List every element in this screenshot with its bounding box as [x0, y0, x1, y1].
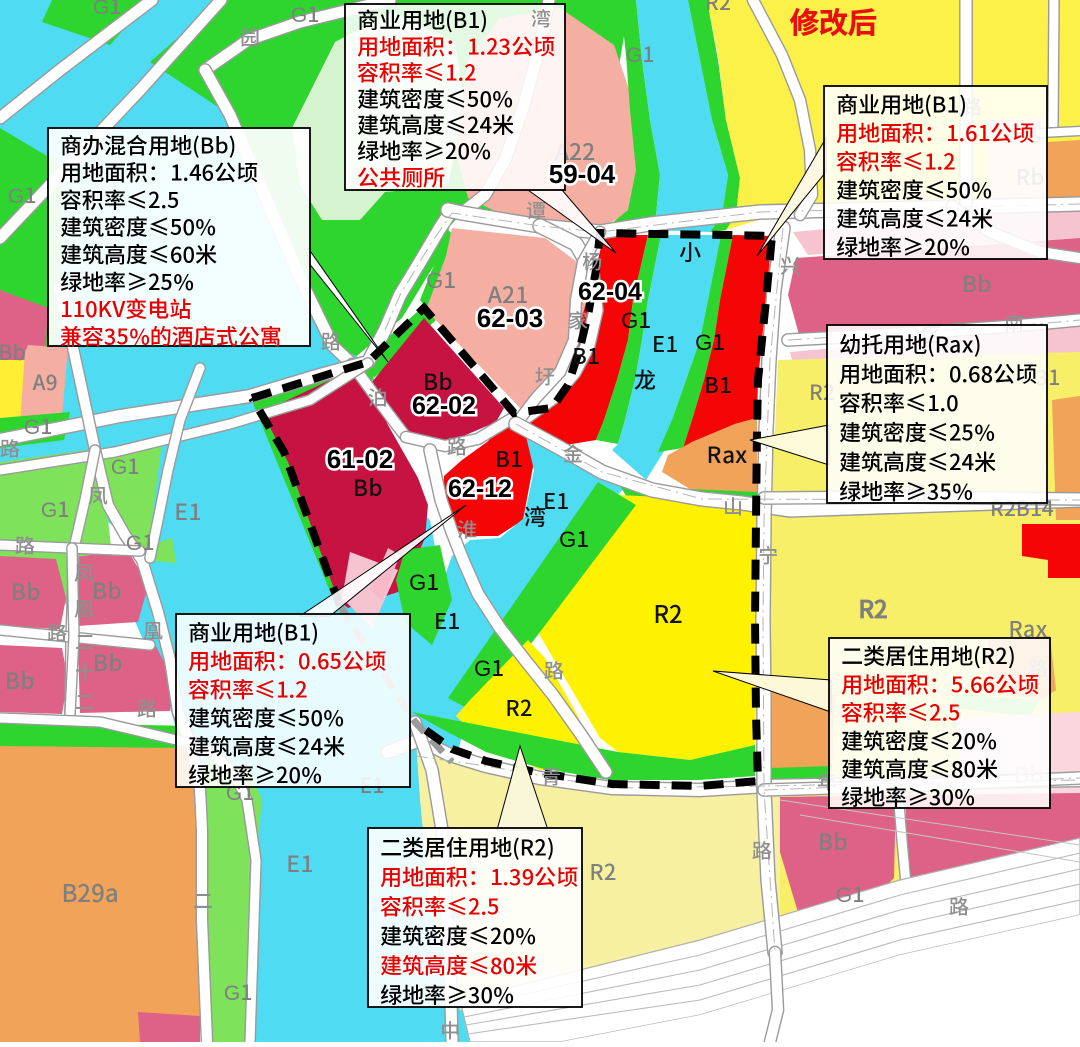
- svg-text:A9: A9: [32, 367, 57, 397]
- svg-text:容积率≤2.5: 容积率≤2.5: [380, 890, 500, 922]
- svg-text:二类居住用地(R2): 二类居住用地(R2): [841, 639, 1016, 671]
- svg-text:路: 路: [47, 617, 67, 646]
- svg-text:路: 路: [15, 530, 35, 559]
- svg-text:圩: 圩: [535, 361, 555, 390]
- svg-text:淮: 淮: [457, 514, 477, 543]
- svg-text:E1: E1: [543, 484, 569, 516]
- svg-text:家: 家: [568, 305, 588, 334]
- svg-text:G1: G1: [626, 39, 654, 69]
- svg-text:用地面积：1.61公顷: 用地面积：1.61公顷: [836, 116, 1034, 148]
- svg-text:G1: G1: [426, 263, 456, 295]
- svg-text:凰: 凰: [143, 615, 163, 644]
- svg-text:62-02: 62-02: [412, 392, 476, 420]
- svg-text:建筑密度≤20%: 建筑密度≤20%: [380, 919, 536, 951]
- svg-text:Bb: Bb: [92, 572, 122, 606]
- svg-text:用地面积：0.65公顷: 用地面积：0.65公顷: [188, 644, 386, 676]
- svg-text:G1: G1: [93, 0, 121, 21]
- svg-text:Bb: Bb: [353, 469, 383, 503]
- svg-text:62-03: 62-03: [477, 303, 544, 333]
- svg-text:园: 园: [240, 22, 260, 51]
- svg-text:B1: B1: [495, 442, 522, 474]
- svg-text:G1: G1: [291, 0, 319, 29]
- svg-text:E1: E1: [175, 493, 202, 527]
- svg-text:泊: 泊: [368, 382, 388, 411]
- svg-text:G1: G1: [224, 977, 252, 1007]
- svg-text:用地面积：5.66公顷: 用地面积：5.66公顷: [841, 667, 1039, 699]
- svg-text:G1: G1: [8, 180, 36, 210]
- svg-text:路: 路: [0, 433, 20, 462]
- svg-text:兼容35%的酒店式公寓: 兼容35%的酒店式公寓: [60, 319, 282, 351]
- svg-text:G1: G1: [559, 522, 589, 554]
- svg-text:B29a: B29a: [61, 874, 118, 909]
- svg-text:E1: E1: [287, 845, 314, 879]
- svg-text:建筑密度≤50%: 建筑密度≤50%: [836, 173, 992, 205]
- svg-text:绿地率≥30%: 绿地率≥30%: [380, 978, 514, 1010]
- svg-text:绿地率≥20%: 绿地率≥20%: [188, 758, 322, 790]
- svg-text:二: 二: [75, 686, 95, 715]
- svg-text:E1: E1: [434, 604, 460, 636]
- svg-text:建筑密度≤25%: 建筑密度≤25%: [839, 416, 995, 448]
- svg-text:G1: G1: [836, 879, 864, 909]
- svg-text:Rax: Rax: [707, 436, 747, 470]
- svg-text:公共厕所: 公共厕所: [357, 160, 445, 192]
- svg-text:建筑高度≤80米: 建筑高度≤80米: [380, 949, 537, 981]
- svg-text:Bb: Bb: [962, 265, 992, 299]
- svg-text:B1: B1: [704, 368, 731, 400]
- svg-text:十: 十: [75, 656, 95, 685]
- svg-text:Bb: Bb: [0, 337, 26, 367]
- svg-text:G1: G1: [126, 527, 154, 557]
- svg-text:G1: G1: [621, 303, 651, 335]
- svg-text:小: 小: [679, 235, 701, 267]
- svg-text:绿地率≥35%: 绿地率≥35%: [839, 474, 973, 506]
- svg-text:修改后: 修改后: [789, 0, 877, 42]
- svg-text:R2: R2: [705, 0, 731, 17]
- svg-text:二类居住用地(R2): 二类居住用地(R2): [380, 831, 555, 863]
- svg-text:G1: G1: [41, 494, 69, 524]
- svg-text:路: 路: [137, 693, 157, 722]
- svg-text:B1: B1: [572, 339, 599, 371]
- svg-text:凤: 凤: [74, 557, 94, 586]
- svg-text:59-04: 59-04: [549, 159, 616, 189]
- svg-text:中: 中: [440, 1015, 460, 1042]
- svg-text:建筑密度≤50%: 建筑密度≤50%: [188, 701, 344, 733]
- svg-text:路: 路: [447, 431, 467, 460]
- svg-text:杨: 杨: [582, 246, 602, 275]
- svg-text:用地面积：0.68公顷: 用地面积：0.68公顷: [839, 357, 1037, 389]
- svg-text:金: 金: [563, 438, 583, 467]
- svg-text:用地面积：1.39公顷: 用地面积：1.39公顷: [380, 860, 578, 892]
- svg-text:路: 路: [752, 835, 772, 864]
- svg-text:G1: G1: [409, 565, 439, 597]
- svg-text:山: 山: [723, 491, 743, 520]
- svg-text:商业用地(B1): 商业用地(B1): [188, 616, 319, 648]
- svg-text:路: 路: [321, 326, 341, 355]
- svg-text:宁: 宁: [758, 540, 778, 569]
- svg-text:绿地率≥30%: 绿地率≥30%: [841, 780, 975, 812]
- svg-text:湾: 湾: [531, 3, 551, 32]
- svg-text:凤: 凤: [88, 480, 108, 509]
- svg-text:建筑密度≤20%: 建筑密度≤20%: [841, 724, 997, 756]
- svg-text:建筑高度≤24米: 建筑高度≤24米: [839, 445, 996, 477]
- svg-text:兴: 兴: [780, 250, 800, 279]
- svg-text:R2: R2: [653, 595, 682, 630]
- svg-text:R2: R2: [506, 691, 533, 723]
- svg-text:青: 青: [541, 761, 561, 790]
- svg-text:建筑高度≤80米: 建筑高度≤80米: [841, 752, 998, 784]
- svg-text:容积率≤1.0: 容积率≤1.0: [839, 386, 959, 418]
- svg-text:G1: G1: [474, 651, 504, 683]
- svg-text:二: 二: [193, 885, 213, 914]
- svg-text:Bb: Bb: [11, 573, 41, 607]
- svg-text:Bb: Bb: [5, 662, 35, 696]
- svg-text:建筑高度≤24米: 建筑高度≤24米: [836, 202, 993, 234]
- svg-text:Bb: Bb: [818, 823, 848, 857]
- svg-text:62-04: 62-04: [578, 278, 642, 306]
- svg-text:龙: 龙: [634, 363, 656, 395]
- svg-text:绿地率≥20%: 绿地率≥20%: [836, 230, 970, 262]
- svg-text:容积率≤2.5: 容积率≤2.5: [841, 696, 961, 728]
- svg-text:凰: 凰: [74, 593, 94, 622]
- svg-text:二: 二: [75, 626, 95, 655]
- svg-text:R2: R2: [858, 590, 887, 625]
- svg-text:R2: R2: [590, 855, 617, 887]
- svg-text:幼托用地(Rax): 幼托用地(Rax): [839, 327, 981, 359]
- svg-text:Bb: Bb: [93, 644, 123, 678]
- svg-text:E1: E1: [652, 327, 678, 359]
- svg-text:容积率≤1.2: 容积率≤1.2: [836, 145, 956, 177]
- svg-text:容积率≤1.2: 容积率≤1.2: [188, 673, 308, 705]
- svg-text:商业用地(B1): 商业用地(B1): [836, 88, 967, 120]
- svg-text:路: 路: [949, 891, 969, 920]
- svg-text:建筑高度≤24米: 建筑高度≤24米: [188, 730, 345, 762]
- svg-text:G1: G1: [24, 411, 52, 441]
- svg-text:路: 路: [544, 655, 564, 684]
- svg-text:62-12: 62-12: [448, 475, 512, 503]
- svg-text:G1: G1: [111, 451, 139, 481]
- svg-text:G1: G1: [695, 325, 725, 357]
